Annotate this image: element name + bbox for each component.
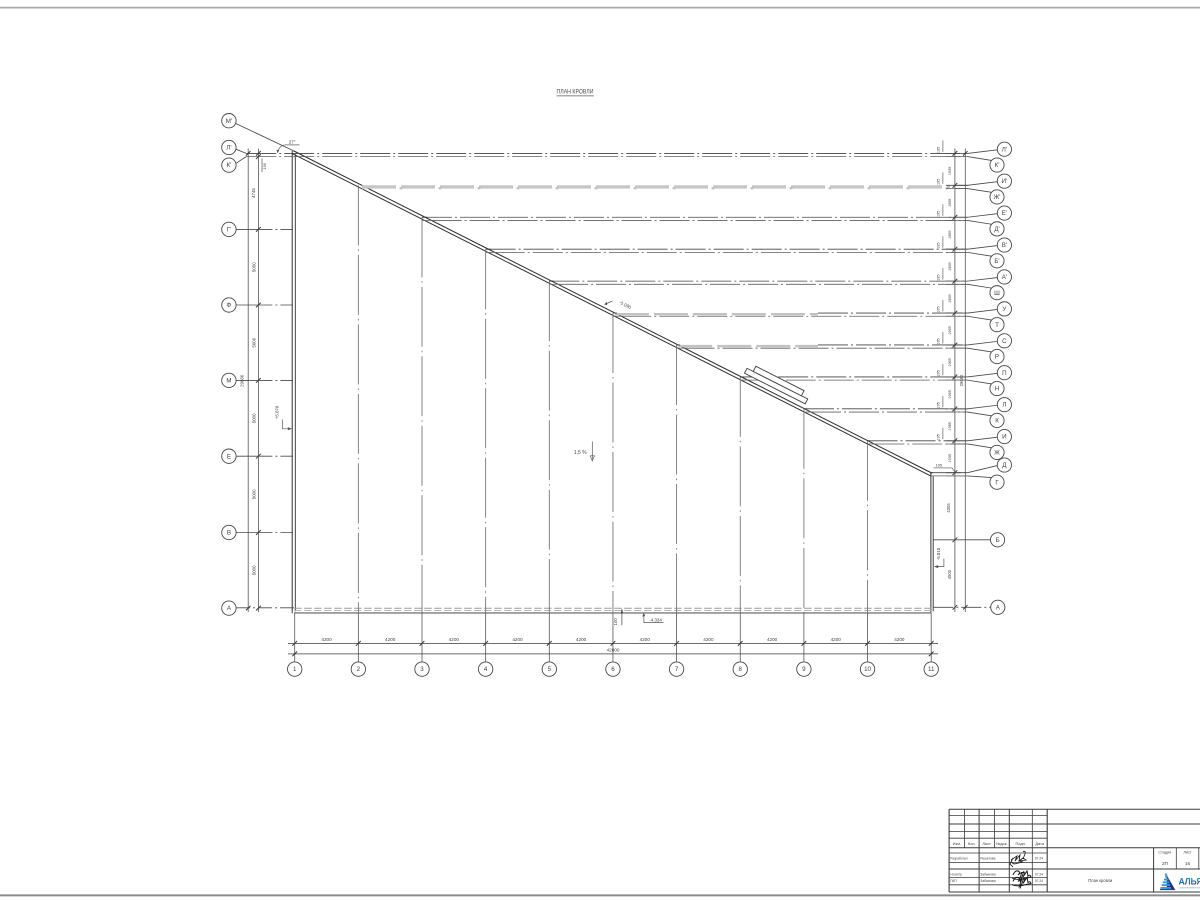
svg-text:195: 195	[936, 147, 940, 153]
svg-text:ПЛАН КРОВЛИ: ПЛАН КРОВЛИ	[557, 90, 594, 96]
svg-text:П: П	[1002, 370, 1006, 377]
svg-text:11: 11	[928, 666, 935, 673]
svg-text:5000: 5000	[251, 413, 256, 423]
svg-text:29680: 29680	[959, 374, 964, 386]
svg-text:1965: 1965	[948, 326, 952, 334]
svg-text:Ж': Ж'	[994, 194, 1001, 201]
svg-text:К: К	[995, 418, 999, 425]
svg-text:Ш: Ш	[994, 290, 1000, 297]
svg-text:Н: Н	[995, 386, 999, 393]
svg-text:Решетова: Решетова	[980, 857, 995, 861]
svg-text:Дата: Дата	[1035, 841, 1044, 846]
svg-text:16: 16	[1185, 861, 1191, 866]
svg-text:У: У	[1002, 306, 1006, 313]
svg-text:4: 4	[484, 666, 488, 673]
svg-text:4200: 4200	[640, 637, 651, 642]
svg-text:5000: 5000	[251, 262, 256, 272]
svg-text:К': К'	[227, 162, 232, 169]
svg-text:195: 195	[936, 434, 940, 440]
svg-text:4200: 4200	[321, 637, 332, 642]
svg-text:И': И'	[1002, 178, 1008, 185]
svg-text:М: М	[226, 378, 231, 385]
svg-text:Изм.: Изм.	[953, 841, 961, 846]
svg-text:1935: 1935	[948, 454, 952, 462]
svg-text:В': В'	[1002, 242, 1007, 249]
svg-text:-4.334: -4.334	[649, 617, 662, 622]
svg-text:5000: 5000	[251, 489, 256, 499]
svg-text:Ж: Ж	[994, 449, 1000, 456]
svg-text:1965: 1965	[948, 358, 952, 366]
svg-text:А': А'	[1002, 274, 1007, 281]
svg-text:строительная компания: строительная компания	[1179, 887, 1200, 890]
svg-text:+5.070: +5.070	[274, 405, 279, 419]
svg-text:Стадия: Стадия	[1158, 851, 1171, 855]
svg-text:5000: 5000	[251, 337, 256, 347]
svg-text:4200: 4200	[831, 637, 842, 642]
svg-text:4200: 4200	[512, 637, 523, 642]
svg-text:1935: 1935	[948, 167, 952, 175]
svg-text:С: С	[1002, 338, 1007, 345]
svg-text:Подп.: Подп.	[1016, 841, 1026, 846]
svg-text:Л: Л	[1002, 402, 1006, 409]
svg-text:4305: 4305	[946, 503, 951, 513]
svg-text:42000: 42000	[607, 648, 620, 653]
svg-text:4200: 4200	[576, 637, 587, 642]
svg-text:Лист: Лист	[1183, 851, 1192, 855]
svg-text:195: 195	[262, 162, 267, 169]
svg-text:195: 195	[936, 211, 940, 217]
svg-text:4500: 4500	[947, 569, 952, 579]
svg-text:4745: 4745	[251, 188, 256, 198]
svg-text:Лист: Лист	[982, 841, 991, 846]
svg-text:6: 6	[611, 666, 615, 673]
svg-text:5000: 5000	[251, 565, 256, 575]
svg-text:Н.контр.: Н.контр.	[950, 873, 962, 877]
svg-text:К': К'	[995, 162, 1000, 169]
svg-text:Е': Е'	[1002, 210, 1007, 217]
svg-text:1965: 1965	[948, 230, 952, 238]
svg-text:Е: Е	[227, 453, 231, 460]
svg-text:В: В	[227, 530, 231, 537]
svg-text:1: 1	[293, 666, 297, 673]
svg-text:Л': Л'	[226, 145, 231, 152]
svg-text:195: 195	[936, 179, 940, 185]
svg-text:195: 195	[936, 306, 940, 312]
svg-text:4200: 4200	[894, 637, 905, 642]
svg-text:195: 195	[936, 338, 940, 344]
svg-text:ГИП: ГИП	[950, 879, 957, 883]
svg-text:Д': Д'	[994, 226, 999, 233]
svg-text:8: 8	[739, 666, 743, 673]
svg-text:1965: 1965	[948, 390, 952, 398]
svg-text:4200: 4200	[767, 637, 778, 642]
svg-text:Т: Т	[995, 322, 999, 329]
svg-text:Р: Р	[995, 354, 999, 361]
svg-text:3: 3	[420, 666, 424, 673]
svg-text:Забынова: Забынова	[980, 873, 995, 877]
svg-text:Л': Л'	[1002, 146, 1007, 153]
svg-text:07.24: 07.24	[1035, 857, 1043, 861]
svg-text:195: 195	[936, 370, 940, 376]
svg-text:План кровли: План кровли	[1088, 878, 1112, 883]
svg-text:Ф: Ф	[227, 302, 232, 309]
svg-text:07.24: 07.24	[1035, 873, 1043, 877]
svg-text:Б: Б	[996, 537, 1000, 544]
svg-text:1965: 1965	[948, 422, 952, 430]
svg-text:Б': Б'	[994, 258, 999, 265]
svg-text:1965: 1965	[948, 199, 952, 207]
svg-text:№док.: №док.	[996, 841, 1007, 846]
svg-text:27°: 27°	[289, 140, 296, 145]
svg-text:5: 5	[548, 666, 552, 673]
svg-text:-5.010: -5.010	[936, 547, 941, 560]
svg-text:4200: 4200	[703, 637, 714, 642]
svg-text:Забынова: Забынова	[980, 879, 995, 883]
svg-text:Разработал: Разработал	[950, 857, 967, 861]
svg-text:2: 2	[357, 666, 361, 673]
svg-text:М': М'	[226, 118, 232, 125]
svg-text:07.24: 07.24	[1035, 879, 1043, 883]
svg-text:100: 100	[613, 618, 618, 626]
svg-text:195: 195	[936, 463, 942, 467]
svg-text:Кол.: Кол.	[968, 841, 976, 846]
svg-text:4200: 4200	[449, 637, 460, 642]
svg-text:1965: 1965	[948, 262, 952, 270]
svg-text:9: 9	[802, 666, 806, 673]
svg-text:195: 195	[936, 243, 940, 249]
svg-text:1,5 %: 1,5 %	[574, 450, 587, 456]
svg-text:4200: 4200	[385, 637, 396, 642]
svg-text:Г': Г'	[227, 227, 232, 234]
svg-text:ЗП: ЗП	[1162, 861, 1168, 866]
svg-text:10: 10	[864, 666, 871, 673]
svg-text:1965: 1965	[948, 294, 952, 302]
svg-text:И: И	[1002, 434, 1006, 441]
svg-text:195: 195	[936, 402, 940, 408]
svg-text:7: 7	[675, 666, 679, 673]
svg-text:195: 195	[936, 274, 940, 280]
